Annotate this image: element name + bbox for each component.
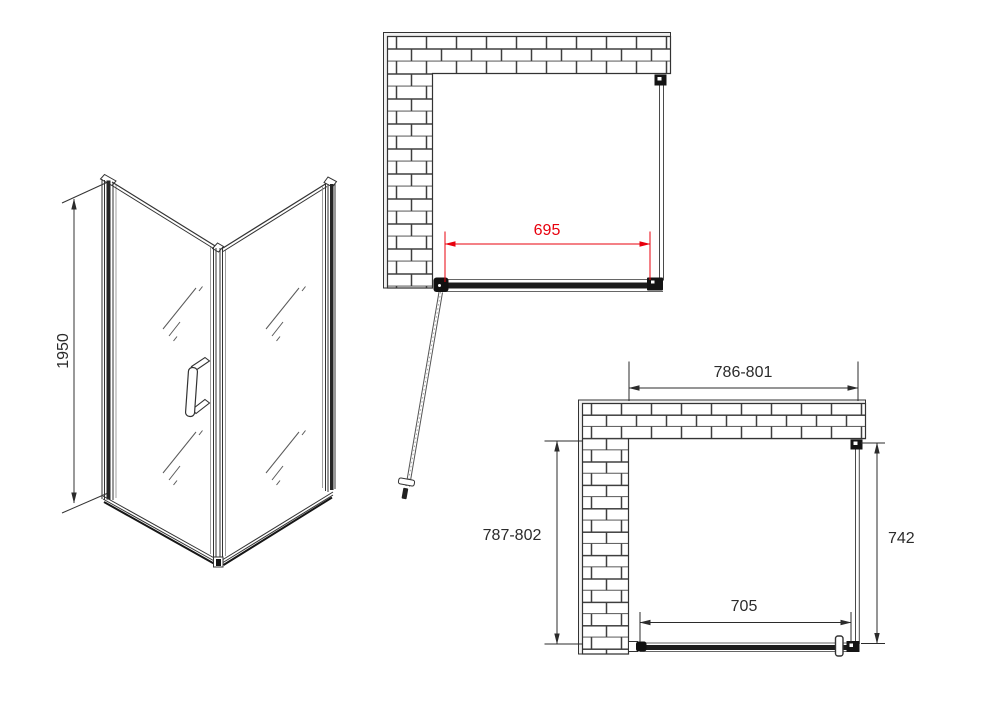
wall-top <box>384 33 671 289</box>
reflection-right-upper <box>266 287 306 342</box>
left-wall-profile <box>101 175 117 501</box>
shower-enclosure-drawing: 1950 <box>0 0 1000 707</box>
side-panel-dimension: 742 <box>861 443 915 644</box>
door-hinge-2 <box>636 642 647 652</box>
door-opening-dimension: 705 <box>640 598 851 642</box>
corner-post <box>211 243 226 567</box>
door-panel-plan-2 <box>629 636 860 656</box>
iso-height-label: 1950 <box>55 333 72 369</box>
reflection-left-upper <box>163 287 203 342</box>
reflection-right-lower <box>266 431 306 486</box>
door-panel-frame <box>103 182 217 565</box>
iso-view: 1950 <box>55 175 337 568</box>
side-panel-plan <box>655 75 667 281</box>
door-width-dimension: 695 <box>445 222 650 282</box>
right-wall-profile <box>323 177 337 492</box>
overall-depth-label: 787-802 <box>483 527 542 544</box>
door-handle <box>185 358 209 417</box>
side-panel-frame <box>223 183 333 565</box>
front-panel-plan <box>434 278 664 293</box>
reflection-left-lower <box>163 431 203 486</box>
plan-view-dimensions: 786-801 787-802 742 705 <box>483 362 915 657</box>
overall-depth-dimension: 787-802 <box>483 441 583 644</box>
door-hinge <box>434 278 449 293</box>
side-panel-plan-2 <box>851 440 863 644</box>
door-handle-plan <box>836 636 844 656</box>
glass-reflection-marks <box>163 287 306 486</box>
door-width-label: 695 <box>534 222 561 239</box>
overall-width-label: 786-801 <box>714 364 773 381</box>
open-door-swing <box>398 292 442 499</box>
technical-drawing-page: 1950 <box>0 0 1000 707</box>
corner-bracket <box>647 278 663 291</box>
overall-width-dimension: 786-801 <box>629 362 858 402</box>
open-door-handle <box>398 478 415 487</box>
wall-bottom <box>579 400 866 654</box>
door-opening-label: 705 <box>731 598 758 615</box>
side-panel-label: 742 <box>888 530 915 547</box>
